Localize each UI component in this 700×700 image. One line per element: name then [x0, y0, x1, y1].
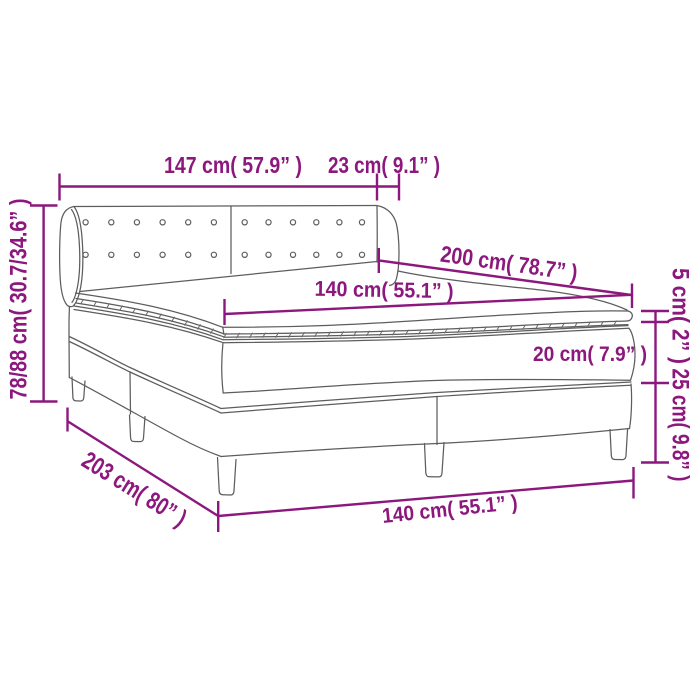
svg-text:25 cm( 9.8” ): 25 cm( 9.8” ) [667, 369, 694, 482]
svg-text:23 cm( 9.1” ): 23 cm( 9.1” ) [328, 152, 440, 178]
svg-text:78/88 cm( 30.7/34.6” ): 78/88 cm( 30.7/34.6” ) [6, 199, 33, 400]
svg-text:20 cm( 7.9” ): 20 cm( 7.9” ) [533, 342, 647, 366]
svg-text:147 cm( 57.9” ): 147 cm( 57.9” ) [164, 152, 302, 178]
svg-text:140 cm( 55.1” ): 140 cm( 55.1” ) [314, 277, 453, 303]
svg-text:5 cm( 2” ): 5 cm( 2” ) [667, 268, 694, 364]
